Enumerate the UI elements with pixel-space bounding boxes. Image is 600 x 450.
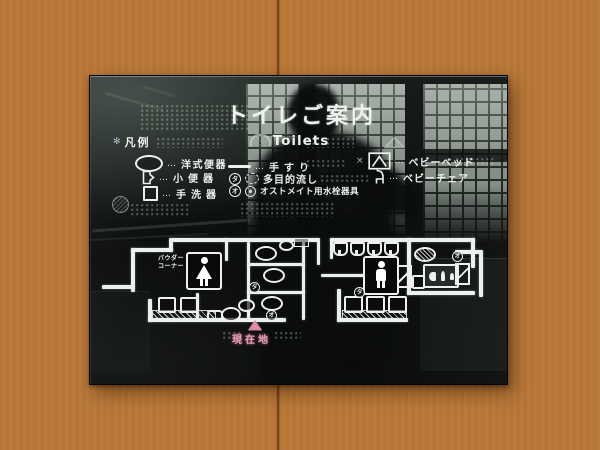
leader-dots: … bbox=[389, 172, 399, 182]
toilet-guide-sign-panel: トイレご案内 Toilets ✻ 凡例 … 洋式便器 … 小便器 … bbox=[89, 75, 508, 385]
toilet-icon bbox=[238, 299, 255, 312]
adult-figure-icon bbox=[441, 271, 445, 281]
pictogram-head bbox=[201, 257, 208, 264]
man-pictogram bbox=[365, 261, 397, 288]
sink-icon bbox=[180, 297, 198, 313]
leader-dots: … bbox=[159, 173, 169, 183]
door-swing-icon bbox=[397, 265, 412, 288]
map-wall bbox=[407, 291, 475, 295]
urinal-map-icon bbox=[367, 242, 382, 256]
map-circled-ta-badge: タ bbox=[354, 287, 365, 298]
legend-label: ベビーチェア bbox=[403, 170, 469, 185]
legend-heading: 凡例 bbox=[125, 134, 151, 150]
sink-icon bbox=[366, 296, 385, 313]
accessible-fixtures-box bbox=[423, 264, 459, 288]
pictogram-dress bbox=[196, 265, 212, 279]
toilet-icon bbox=[263, 268, 285, 283]
baby-figure-icon bbox=[450, 273, 454, 280]
ostomate-fixture-icon bbox=[245, 186, 256, 197]
legend-heading-row: ✻ 凡例 bbox=[113, 134, 151, 150]
legend-label: 多目的流し bbox=[263, 171, 318, 186]
pictogram-legs bbox=[200, 279, 207, 286]
pictogram-legs bbox=[377, 281, 384, 288]
circled-o-badge: オ bbox=[229, 185, 241, 197]
legend-row-ostomate: オ オストメイト用水栓器具 bbox=[229, 185, 359, 197]
sign-subtitle-en: Toilets bbox=[190, 133, 412, 149]
circled-ta-badge: タ bbox=[229, 173, 241, 185]
map-circled-o-badge: オ bbox=[266, 310, 277, 321]
printed-content: トイレご案内 Toilets ✻ 凡例 … 洋式便器 … 小便器 … bbox=[90, 76, 507, 384]
woman-pictogram bbox=[188, 257, 220, 286]
baby-station-icon bbox=[294, 238, 309, 247]
sink-icon bbox=[158, 297, 176, 313]
sign-title: トイレご案内 bbox=[190, 98, 412, 130]
legend-row-baby-chair: … ベビーチェア bbox=[373, 169, 469, 185]
toilet-icon bbox=[261, 296, 283, 311]
stool-icon bbox=[207, 310, 223, 322]
handrail-icon bbox=[228, 165, 251, 168]
powder-corner-line2: コーナー bbox=[158, 263, 184, 271]
map-wall bbox=[479, 253, 483, 297]
urinal-icon bbox=[142, 170, 155, 185]
map-wall bbox=[102, 285, 134, 289]
legend-label: 小便器 bbox=[173, 170, 218, 185]
x-mark: × bbox=[356, 156, 364, 166]
legend-label: ベビーベッド bbox=[409, 154, 475, 169]
ostomate-sink-icon bbox=[414, 247, 436, 262]
legend-label: 手洗器 bbox=[176, 186, 221, 201]
legend-row-basin: … 手洗器 bbox=[143, 186, 221, 201]
legend-row-multipurpose-sink: タ 多目的流し bbox=[229, 171, 318, 186]
photo-scene: トイレご案内 Toilets ✻ 凡例 … 洋式便器 … 小便器 … bbox=[0, 0, 600, 450]
legend-row-urinal: … 小便器 bbox=[142, 170, 218, 185]
multipurpose-sink-icon bbox=[245, 173, 259, 184]
floor-plan: パウダー コーナー bbox=[128, 233, 488, 353]
pictogram-head bbox=[378, 261, 385, 268]
leader-dots: … bbox=[162, 189, 172, 199]
toilet-icon bbox=[255, 246, 277, 261]
map-wall bbox=[337, 289, 341, 322]
sink-icon bbox=[388, 296, 407, 313]
map-wall bbox=[317, 238, 320, 265]
map-wall bbox=[302, 242, 305, 320]
map-wall bbox=[131, 248, 173, 252]
map-circled-ta-badge: タ bbox=[249, 282, 260, 293]
toilet-icon bbox=[221, 307, 241, 322]
baby-bed-icon bbox=[368, 152, 391, 170]
map-wall bbox=[247, 263, 305, 266]
legend-label: 洋式便器 bbox=[181, 156, 227, 171]
map-circled-o-badge: オ bbox=[452, 251, 463, 262]
baby-chair-icon bbox=[373, 169, 385, 185]
urinal-map-icon bbox=[333, 242, 348, 256]
sink-icon bbox=[344, 296, 363, 313]
hand-basin-icon bbox=[143, 186, 158, 201]
toilet-icon bbox=[279, 240, 294, 251]
urinal-map-icon bbox=[350, 242, 365, 256]
leader-dots: … bbox=[167, 159, 177, 169]
mens-room-pictogram-box bbox=[363, 256, 399, 295]
womens-room-pictogram-box bbox=[186, 252, 222, 290]
title-block: トイレご案内 Toilets bbox=[190, 98, 412, 149]
urinal-map-icon bbox=[384, 242, 399, 256]
pictogram-torso bbox=[376, 269, 386, 281]
leader-dots: … bbox=[255, 162, 265, 172]
current-location-label: 現在地 bbox=[232, 331, 271, 346]
legend-marker-icon: ✻ bbox=[113, 137, 121, 147]
legend-label: オストメイト用水栓器具 bbox=[260, 185, 359, 197]
map-wall bbox=[225, 238, 228, 261]
leader-dots: … bbox=[395, 156, 405, 166]
current-location-pointer-icon bbox=[248, 320, 262, 330]
powder-corner-label: パウダー コーナー bbox=[158, 255, 184, 270]
map-wall bbox=[321, 274, 365, 277]
wheelchair-icon bbox=[429, 272, 436, 281]
powder-corner-line1: パウダー bbox=[158, 255, 184, 263]
legend-row-baby-bed: × … ベビーベッド bbox=[356, 152, 475, 170]
